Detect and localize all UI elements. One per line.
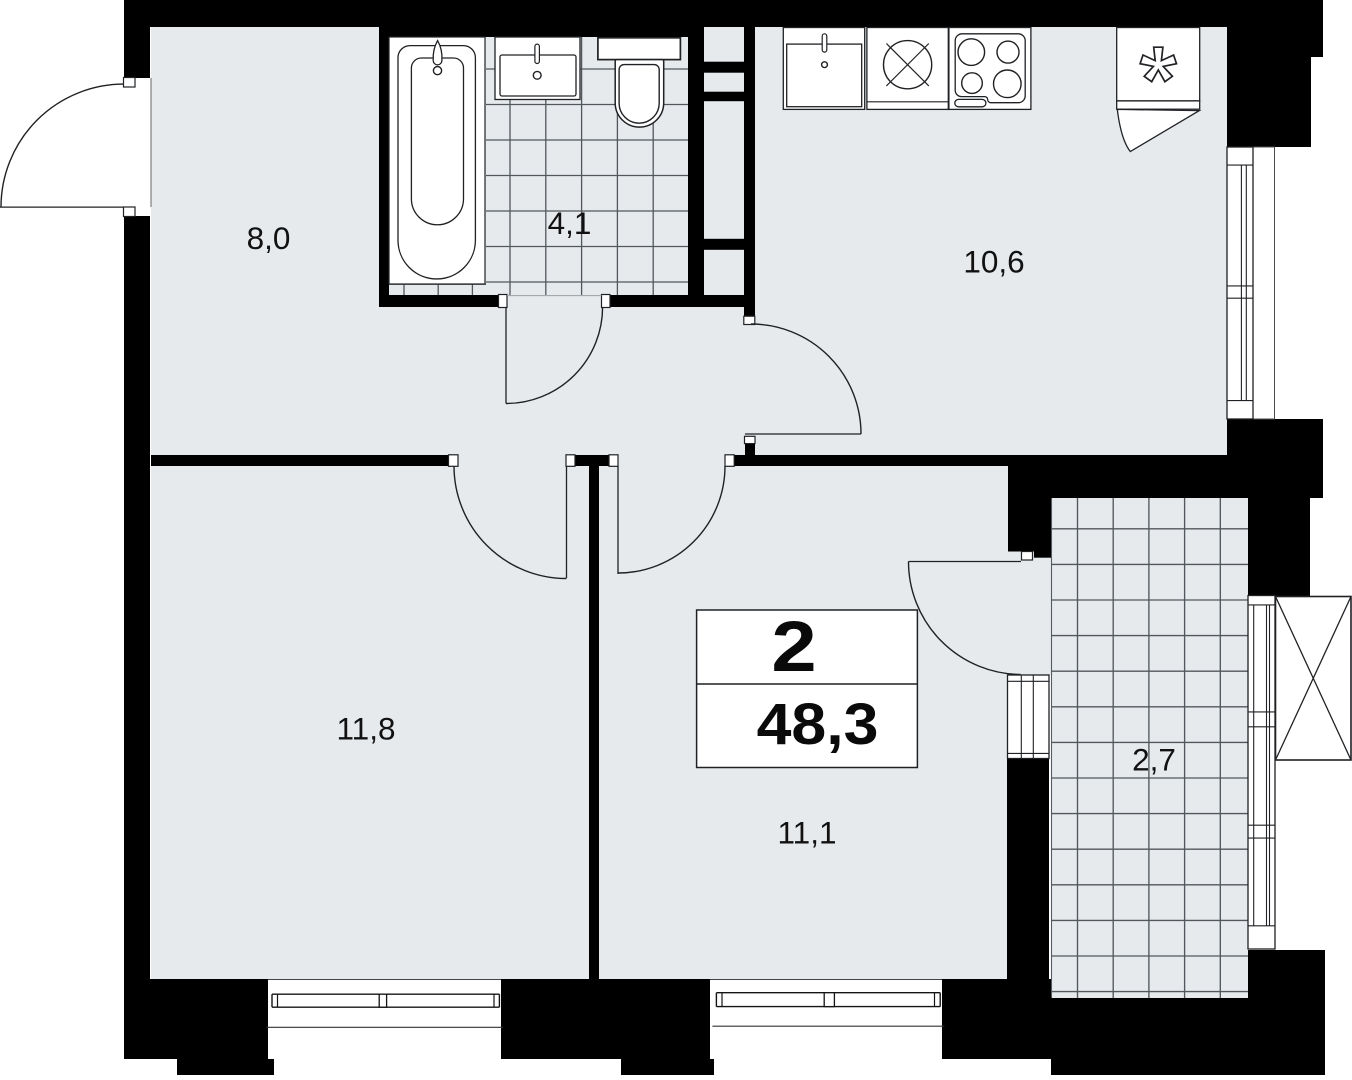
svg-text:8,0: 8,0 [247,220,291,256]
svg-text:4,1: 4,1 [548,205,592,241]
svg-text:11,8: 11,8 [337,711,396,747]
svg-text:48,3: 48,3 [757,692,879,757]
svg-text:11,1: 11,1 [778,814,837,850]
svg-text:10,6: 10,6 [963,244,1024,280]
svg-text:2,7: 2,7 [1132,742,1176,778]
svg-text:2: 2 [771,608,816,687]
